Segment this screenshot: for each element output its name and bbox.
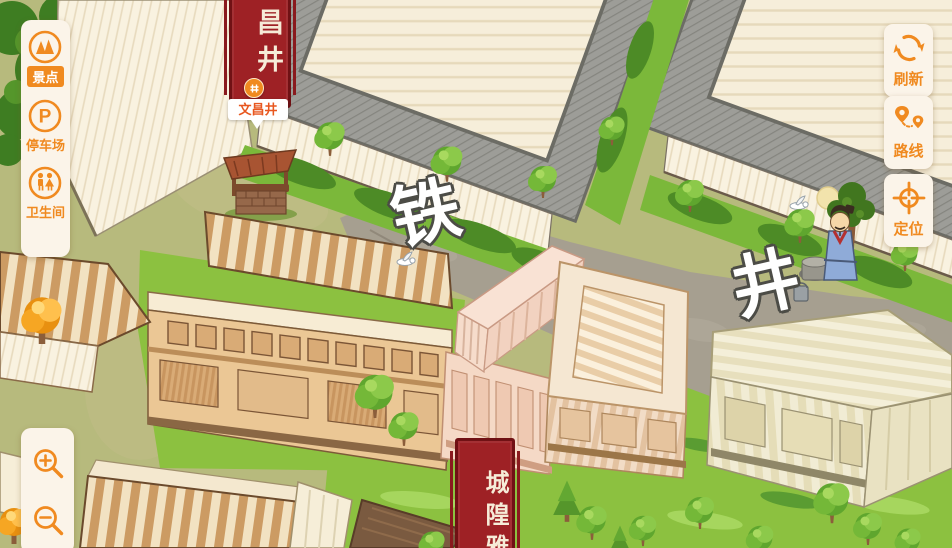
zoom-in-button[interactable] — [29, 444, 67, 482]
area-label-1: 铁 — [385, 173, 467, 255]
sidebar-item-parking[interactable]: P 停车场 — [26, 98, 65, 154]
zoom-out-icon — [29, 501, 67, 539]
area-label-2: 井 — [725, 243, 807, 325]
sidebar-item-scenic-spots[interactable]: 景点 — [27, 29, 63, 87]
route-button[interactable]: 路线 — [884, 96, 933, 169]
button-label: 路线 — [893, 140, 923, 161]
sidebar-item-restroom[interactable]: 卫生间 — [26, 165, 65, 221]
route-icon — [892, 103, 926, 137]
parking-icon: P — [27, 98, 63, 134]
restroom-icon — [27, 165, 63, 201]
well-marker-icon[interactable] — [244, 78, 264, 98]
poi-label[interactable]: 文昌井 — [228, 99, 288, 120]
building-pink-courtyard — [545, 262, 688, 478]
sidebar-item-label: 停车场 — [26, 135, 65, 154]
button-label: 刷新 — [893, 68, 923, 89]
well-illustration — [224, 150, 297, 221]
refresh-icon — [892, 31, 926, 65]
sidebar-item-label: 景点 — [27, 66, 63, 87]
category-panel: 景点 P 停车场 — [21, 20, 70, 257]
zoom-in-icon — [29, 444, 67, 482]
svg-text:P: P — [39, 107, 52, 128]
poi-label-pointer — [251, 120, 263, 129]
locate-icon — [892, 181, 926, 215]
refresh-button[interactable]: 刷新 — [884, 24, 933, 97]
poi-banner-bottom[interactable]: 城隍雅 — [455, 438, 515, 548]
sidebar-item-label: 卫生间 — [26, 202, 65, 221]
locate-button[interactable]: 定位 — [884, 174, 933, 247]
app-window: 文昌井 城隍雅 文昌井 铁 井 景点 P 停车场 — [0, 0, 952, 548]
button-label: 定位 — [893, 218, 923, 239]
scenic-spot-icon — [27, 29, 63, 65]
well-glyph — [249, 83, 260, 94]
zoom-out-button[interactable] — [29, 501, 67, 539]
zoom-controls — [21, 428, 74, 548]
